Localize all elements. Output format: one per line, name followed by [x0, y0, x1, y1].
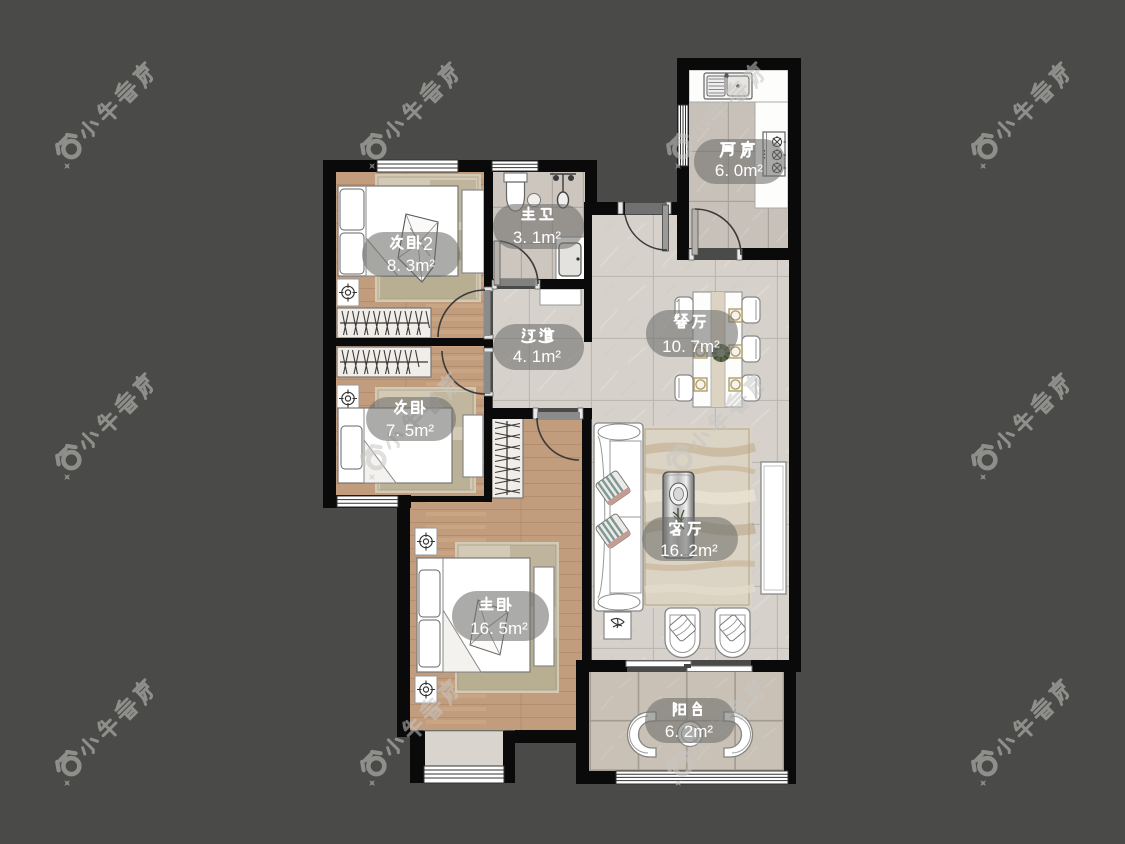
svg-text:6. 2m²: 6. 2m²	[665, 722, 714, 741]
svg-text:16. 2m²: 16. 2m²	[660, 541, 718, 560]
svg-text:4. 1m²: 4. 1m²	[513, 347, 562, 366]
svg-text:10. 7m²: 10. 7m²	[662, 337, 720, 356]
svg-text:2: 2	[423, 234, 433, 254]
svg-text:3. 1m²: 3. 1m²	[513, 228, 562, 247]
svg-text:7. 5m²: 7. 5m²	[386, 421, 435, 440]
svg-text:8. 3m²: 8. 3m²	[387, 256, 436, 275]
svg-text:16. 5m²: 16. 5m²	[470, 619, 528, 638]
svg-text:6. 0m²: 6. 0m²	[715, 161, 764, 180]
